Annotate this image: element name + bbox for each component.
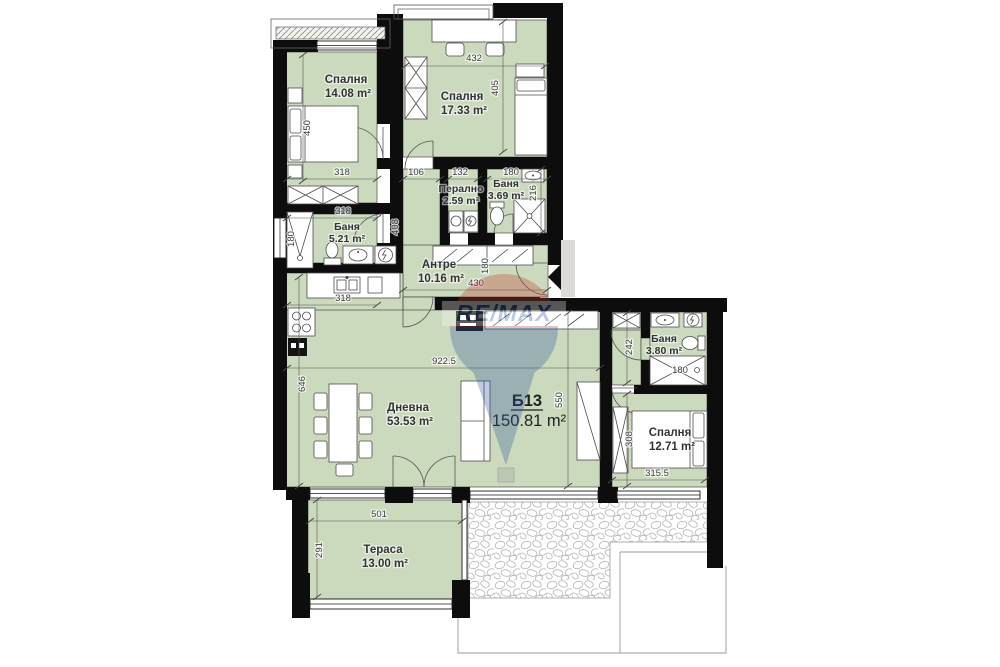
label-bedroom2-area: 17.33 m²: [441, 105, 487, 117]
dim-922-5: 922.5: [432, 356, 456, 367]
bed-icon-bedroom-3: [632, 411, 707, 468]
label-hall-name: Антре: [422, 259, 456, 271]
label-bathroom3-area: 3.80 m²: [646, 345, 683, 357]
label-bathroom1-name: Баня: [334, 221, 360, 233]
dim-318-kitchen: 318: [335, 293, 351, 304]
dim-291: 291: [314, 542, 325, 558]
label-bathroom2-name: Баня: [493, 178, 519, 190]
terrace-railing: [462, 500, 467, 580]
dim-180-bathroom2: 180: [503, 167, 519, 178]
dim-242: 242: [624, 339, 635, 355]
label-hall-area: 10.16 m²: [418, 273, 464, 285]
remax-brand-text: RE/MAX: [456, 300, 552, 326]
label-living-name: Дневна: [387, 402, 430, 414]
dim-408: 408: [390, 219, 401, 235]
stove-icon: [288, 308, 315, 336]
label-terrace-name: Тераса: [363, 544, 403, 556]
floor-plan-drawing: 432 405 450 318 106 132 180 216 318 180 …: [0, 0, 1000, 667]
corridor-wardrobe-icon: [613, 313, 640, 328]
roof-pebble-area: [468, 502, 707, 598]
dim-308: 308: [624, 431, 635, 447]
label-bathroom2-area: 3.69 m²: [488, 190, 525, 202]
dim-216: 216: [528, 185, 539, 201]
dim-646: 646: [297, 376, 308, 392]
label-bedroom2-name: Спалня: [441, 91, 484, 103]
window-bedroom-2-inner: [398, 9, 489, 19]
wardrobe-icon-bedroom-2: [405, 57, 427, 119]
room-hall-opening: [403, 297, 435, 311]
dim-132: 132: [452, 167, 468, 178]
label-bathroom3-name: Баня: [651, 333, 677, 345]
dim-318-wardrobe: 318: [335, 206, 351, 217]
dim-180-bathtub: 180: [286, 231, 297, 247]
dim-180-hall: 180: [480, 258, 491, 274]
window-bedroom-2-outer: [394, 5, 493, 19]
outside-corridor: [561, 240, 575, 297]
dim-550: 550: [554, 392, 565, 408]
dim-180-shower: 180: [672, 365, 688, 376]
remax-balloon-basket: [498, 468, 514, 482]
label-terrace-area: 13.00 m²: [362, 558, 408, 570]
label-bedroom1-name: Спалня: [325, 74, 368, 86]
balcony-slab-hatch: [276, 27, 385, 39]
dim-450: 450: [302, 120, 313, 136]
dim-405: 405: [490, 80, 501, 96]
dim-315-5: 315.5: [645, 468, 669, 479]
dim-106: 106: [408, 167, 424, 178]
label-bedroom3-name: Спалня: [649, 427, 692, 439]
floor-plan-page: 432 405 450 318 106 132 180 216 318 180 …: [0, 0, 1000, 667]
dim-318-bedroom1: 318: [334, 167, 350, 178]
wardrobe-icon-bedroom-1: [288, 186, 358, 204]
label-laundry-name: Перално: [438, 183, 483, 195]
label-laundry-area: 2.59 m²: [443, 195, 480, 207]
bed-icon-bedroom-2: [515, 64, 547, 155]
label-bedroom3-area: 12.71 m²: [649, 441, 695, 453]
label-bedroom1-area: 14.08 m²: [325, 88, 371, 100]
dim-501: 501: [371, 509, 387, 520]
kitchen-sink-unit-icon: [288, 338, 307, 356]
label-bathroom1-area: 5.21 m²: [329, 233, 366, 245]
label-living-area: 53.53 m²: [387, 416, 433, 428]
tv-sideboard-icon: [577, 382, 600, 460]
dim-432: 432: [466, 53, 482, 64]
